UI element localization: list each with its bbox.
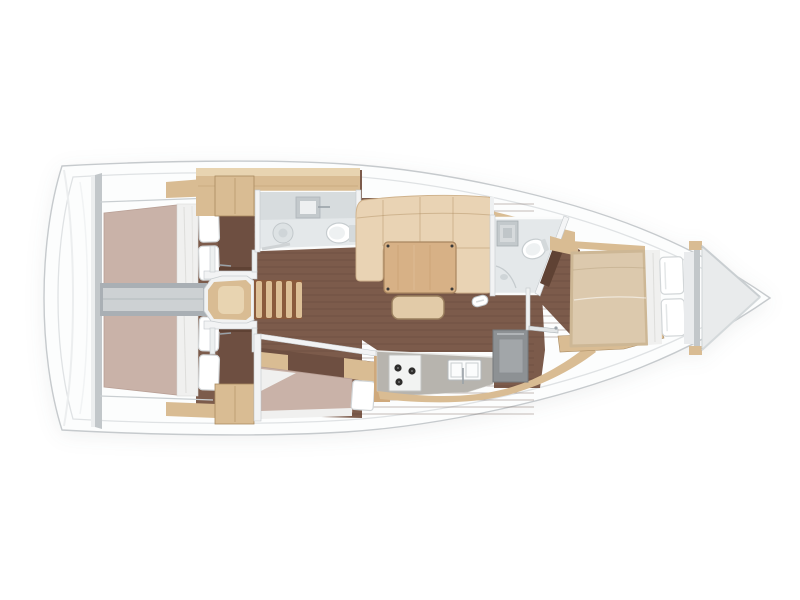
- door-jamb: [526, 288, 530, 330]
- ottoman-stool: [392, 296, 444, 319]
- stern-bulkhead-highlight: [91, 176, 95, 427]
- sink-basin-inner: [300, 201, 316, 214]
- fridge-lid: [499, 339, 523, 373]
- bulkhead-stub: [252, 250, 257, 272]
- bulkhead-stub: [210, 328, 215, 354]
- door-handle: [220, 333, 231, 334]
- head-wall-left: [255, 190, 260, 252]
- toilet-tank: [349, 225, 356, 242]
- stove-burner-center: [397, 367, 399, 369]
- engine-corridor: [100, 283, 207, 316]
- pillow-crease: [666, 304, 667, 331]
- boat-floor-plan: [0, 0, 800, 600]
- stair-tread: [296, 282, 302, 318]
- wardrobe-port: [215, 176, 254, 216]
- bed-sheet-band: [177, 308, 198, 396]
- bulkhead-stub: [210, 246, 215, 272]
- stair-tread: [256, 281, 262, 318]
- stair-tread: [266, 281, 272, 318]
- toilet-seat: [329, 227, 345, 240]
- bulkhead-trim: [689, 241, 702, 250]
- forepeak-bulkhead: [694, 246, 700, 350]
- stove: [389, 355, 421, 391]
- wardrobe-starboard: [215, 384, 254, 424]
- double-bed-mattress: [104, 205, 177, 291]
- top-cabinet-strip-highlight: [196, 168, 360, 176]
- pillow-crease: [665, 262, 666, 289]
- stove-burner-center: [411, 370, 413, 372]
- aft-head: [255, 190, 361, 252]
- table-corner-fitting: [451, 245, 454, 248]
- head-wall-left: [490, 215, 495, 296]
- double-bed-mattress: [104, 309, 177, 395]
- stair-tread: [286, 281, 292, 318]
- bulkhead-trim: [689, 346, 702, 355]
- pillow: [660, 257, 684, 295]
- shower-drain: [500, 274, 508, 280]
- table-corner-fitting: [387, 245, 390, 248]
- berth-wall-left: [254, 334, 261, 421]
- pillow: [661, 299, 685, 337]
- stairs-pod-highlight: [218, 286, 244, 314]
- anchor-locker-floor: [702, 246, 760, 350]
- pillow: [351, 380, 375, 410]
- stair-tread: [276, 281, 282, 318]
- starboard-shelf: [166, 402, 216, 418]
- door-handle: [554, 326, 557, 329]
- anchor-locker: [702, 246, 760, 350]
- bed-sheet-band: [177, 204, 198, 292]
- table-corner-fitting: [387, 288, 390, 291]
- sink-basin-bowl: [503, 228, 512, 238]
- shower-drain-inner: [279, 229, 288, 238]
- stove-burner-center: [398, 381, 400, 383]
- table-corner-fitting: [451, 288, 454, 291]
- saloon-table: [384, 242, 456, 293]
- door-handle: [220, 265, 231, 266]
